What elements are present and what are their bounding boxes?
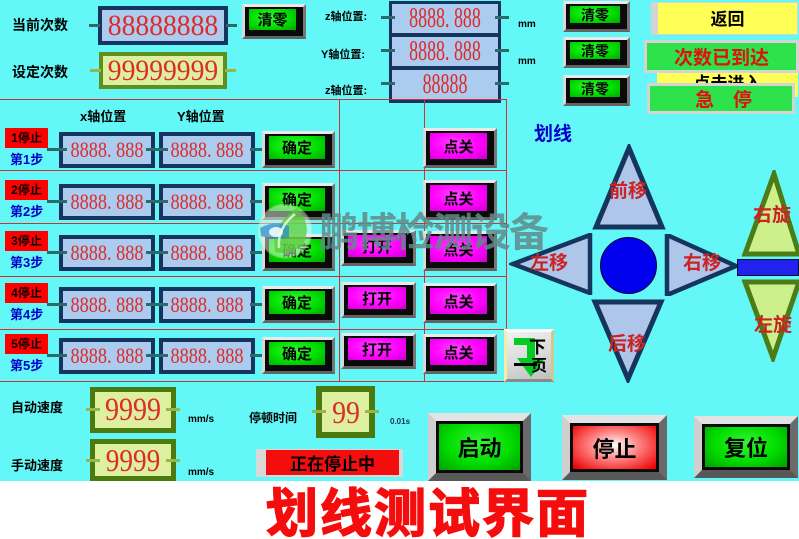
svg-text:页: 页 [531, 352, 547, 376]
